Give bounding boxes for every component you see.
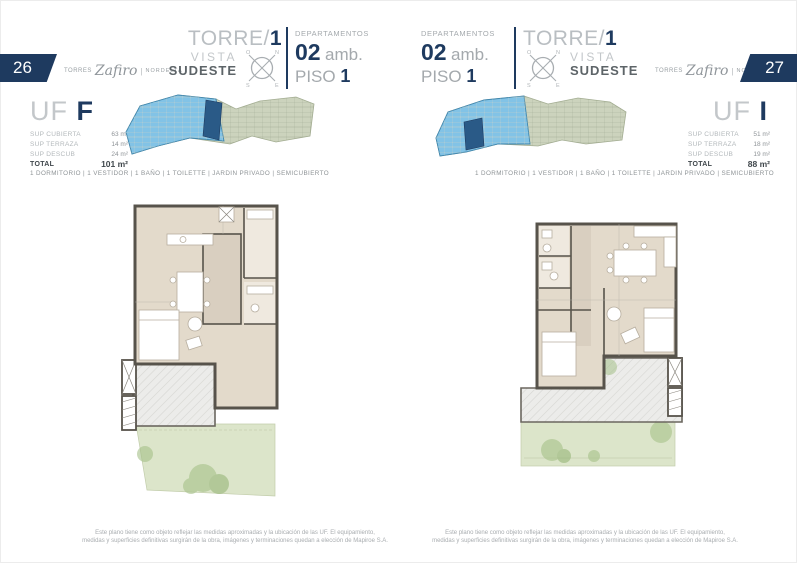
header-divider-left: [286, 27, 288, 89]
page-number-right-text: 27: [765, 58, 784, 78]
page-number-right: 27: [740, 54, 797, 82]
vista-block-right: VISTA SUDESTE: [570, 50, 652, 78]
page-number-left: 26: [0, 54, 57, 82]
site-location-map-right: [428, 82, 633, 170]
brand-divider: |: [140, 67, 142, 76]
tower-number: 1: [605, 27, 617, 50]
unit-id-right: UF I: [688, 96, 768, 127]
unit-location-highlight: [203, 100, 222, 140]
dept-block-left: DEPARTAMENTOS 02 amb. PISO 1: [295, 29, 415, 87]
floorplan-uf-f: [103, 192, 331, 520]
compass-north: N: [556, 50, 560, 56]
floor-number: 1: [340, 66, 350, 86]
brand-prefix: Torres: [64, 68, 92, 74]
orientation-label: SUDESTE: [155, 64, 237, 78]
unit-id-left: UF F: [30, 96, 94, 127]
header-divider-right: [514, 27, 516, 89]
amenities-right: 1 DORMITORIO | 1 VESTIDOR | 1 BAÑO | 1 T…: [475, 170, 767, 177]
dept-units-suffix: amb.: [451, 45, 489, 64]
floorplan-uf-i: [494, 192, 726, 520]
uf-label: UF: [713, 96, 751, 126]
brand-name: Zafiro: [95, 63, 138, 79]
surface-row: SUP DESCUB19 m²: [688, 149, 770, 159]
dept-units: 02: [295, 39, 321, 65]
dept-label: DEPARTAMENTOS: [295, 29, 415, 38]
compass-west: O: [527, 50, 532, 56]
hallway-vestidor: [571, 226, 591, 346]
vista-label: VISTA: [570, 50, 652, 64]
site-location-map-left: [118, 82, 323, 170]
uf-letter: I: [759, 96, 768, 126]
brand-prefix: Torres: [655, 68, 683, 74]
disclaimer-right: Este plano tiene como objeto reflejar la…: [425, 529, 745, 545]
page-number-left-text: 26: [13, 58, 32, 78]
vista-label: VISTA: [155, 50, 237, 64]
brand-name: Zafiro: [686, 63, 729, 79]
surface-row-total: TOTAL88 m²: [688, 159, 770, 169]
orientation-label: SUDESTE: [570, 64, 652, 78]
brochure-page: 26 Torres Zafiro | NORDELTA TORRE/1 VIST…: [0, 0, 797, 563]
private-garden: [521, 421, 675, 466]
surface-row: SUP TERRAZA18 m²: [688, 139, 770, 149]
surface-row: SUP CUBIERTA51 m²: [688, 129, 770, 139]
compass-west: O: [246, 50, 251, 56]
unit-location-highlight: [464, 118, 484, 150]
disclaimer-left: Este plano tiene como objeto reflejar la…: [75, 529, 395, 545]
dept-units: 02: [421, 39, 447, 65]
compass-north: N: [275, 50, 279, 56]
dept-units-suffix: amb.: [325, 45, 363, 64]
amenities-left: 1 DORMITORIO | 1 VESTIDOR | 1 BAÑO | 1 T…: [30, 170, 329, 177]
semicovered-terrace: [133, 364, 215, 426]
surface-table-right: SUP CUBIERTA51 m² SUP TERRAZA18 m² SUP D…: [688, 129, 770, 169]
uf-label: UF: [30, 96, 68, 126]
vista-block-left: VISTA SUDESTE: [155, 50, 237, 78]
uf-letter: F: [77, 96, 95, 126]
private-garden: [136, 424, 275, 496]
brand-divider: |: [731, 67, 733, 76]
